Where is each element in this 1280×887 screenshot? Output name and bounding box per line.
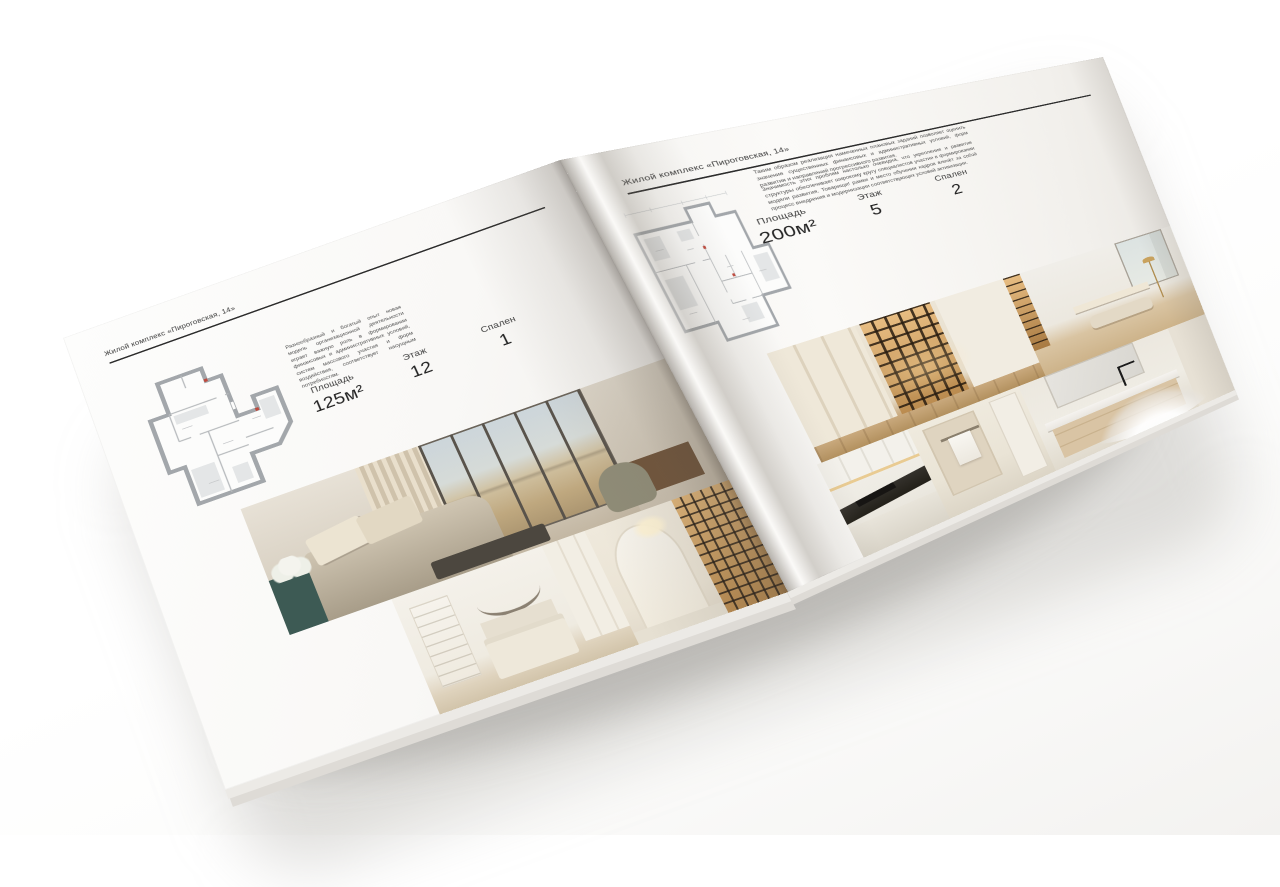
plan-outer-walls: [139, 347, 309, 509]
shelving-unit-shape: [409, 595, 483, 689]
stat-bedrooms-left: Спален 1: [455, 306, 551, 363]
left-page-header: Жилой комплекс «Пироговская, 14»: [103, 304, 236, 357]
brochure-mockup-scene: Жилой комплекс «Пироговская, 14»: [0, 0, 1280, 835]
